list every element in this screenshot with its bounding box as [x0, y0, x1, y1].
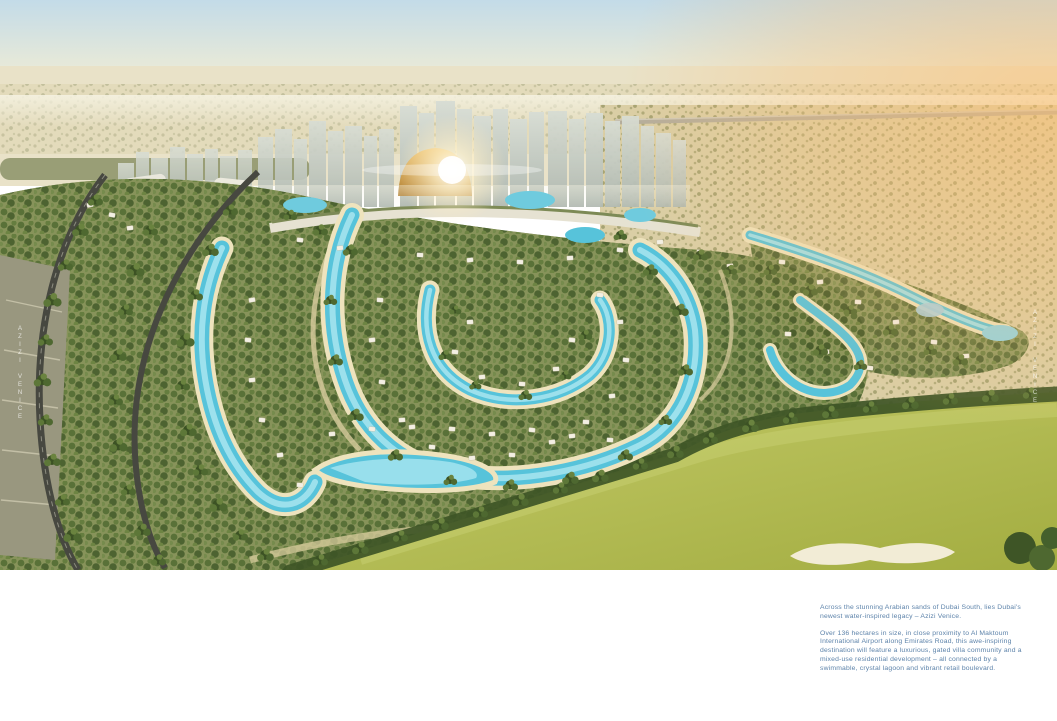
hero-image-container: AZIZI VENICE AZIZI VENICE — [0, 0, 1057, 570]
caption-block: Across the stunning Arabian sands of Dub… — [820, 604, 1022, 682]
brochure-page: AZIZI VENICE AZIZI VENICE Across the stu… — [0, 0, 1057, 721]
caption-paragraph-1: Across the stunning Arabian sands of Dub… — [820, 604, 1022, 622]
watermark-right: AZIZI VENICE — [1032, 310, 1038, 406]
caption-paragraph-2: Over 136 hectares in size, in close prox… — [820, 630, 1022, 674]
hero-image — [0, 0, 1057, 570]
watermark-left: AZIZI VENICE — [17, 326, 23, 422]
